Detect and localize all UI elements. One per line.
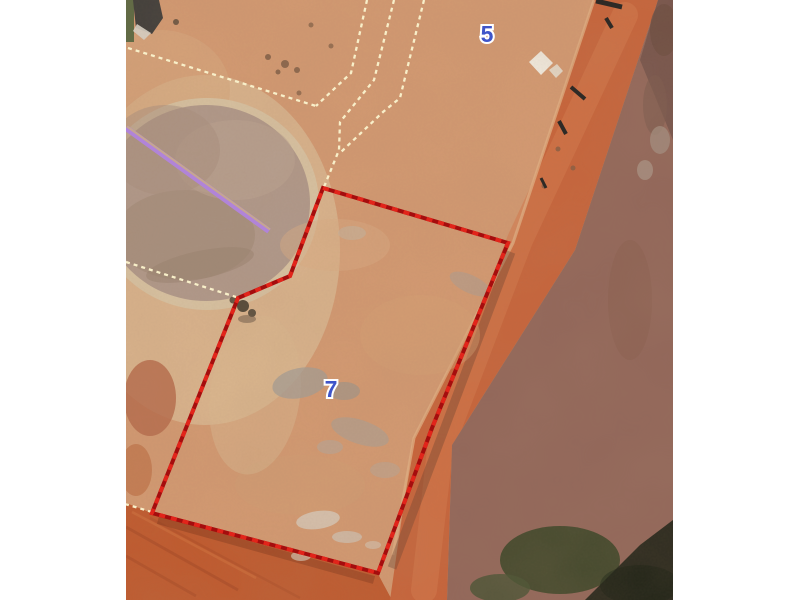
photo-clip-group: 57 xyxy=(70,0,680,600)
page: 57 xyxy=(0,0,800,600)
lot-7-label: 7 xyxy=(325,376,338,402)
aerial-photo: 57 xyxy=(0,0,800,600)
lot-5-label: 5 xyxy=(481,21,494,47)
